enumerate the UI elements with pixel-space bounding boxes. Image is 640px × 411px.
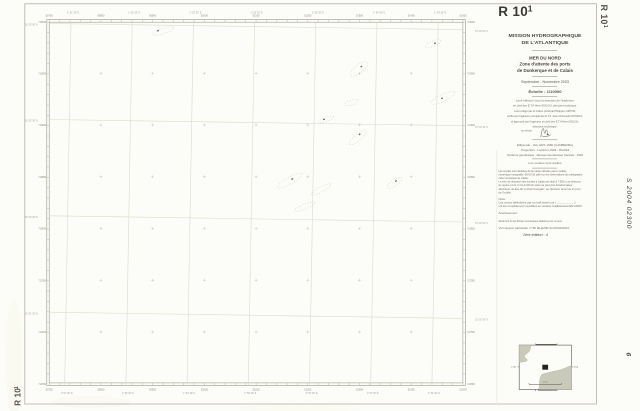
svg-text:1° 53' 00" E: 1° 53' 00" E: [251, 11, 263, 15]
svg-text:51300: 51300: [356, 14, 363, 18]
svg-text:1: 1: [14, 386, 20, 389]
svg-text:7126500: 7126500: [39, 382, 47, 386]
svg-text:7130000: 7130000: [39, 20, 47, 24]
svg-text:1° 52' 30" E: 1° 52' 30" E: [189, 11, 201, 15]
svg-text:7127500: 7127500: [39, 278, 47, 282]
svg-text:51200: 51200: [304, 388, 311, 392]
svg-text:7127500: 7127500: [467, 278, 475, 282]
svg-text:Voir rapport particulier n° 55: Voir rapport particulier n° 55 MHA/NP du…: [499, 226, 570, 230]
svg-text:Ellipsoïde : IAG GRS 1980 (CAN: Ellipsoïde : IAG GRS 1980 (CANBERRA): [517, 143, 573, 147]
svg-text:7126500: 7126500: [467, 382, 475, 386]
svg-text:1° 52' 30" E: 1° 52' 30" E: [183, 391, 195, 395]
svg-text:Levé rédigé par le maître prin: Levé rédigé par le maître principal Phil…: [514, 109, 576, 113]
svg-text:1: 1: [528, 3, 533, 13]
svg-text:Zone d'attente des ports: Zone d'attente des ports: [520, 62, 572, 67]
svg-text:Échelle : 1/10000: Échelle : 1/10000: [529, 89, 562, 94]
svg-text:7128500: 7128500: [467, 175, 475, 179]
svg-text:Projection : Lambert 1993 - RG: Projection : Lambert 1993 - RGF93: [521, 148, 569, 152]
svg-text:en chef des E.T.A Henri DOLOU,: en chef des E.T.A Henri DOLOU, directeur…: [513, 104, 577, 108]
svg-text:1° 51' 30" E: 1° 51' 30" E: [61, 391, 73, 395]
svg-text:DE L'ATLANTIQUE: DE L'ATLANTIQUE: [522, 40, 570, 46]
svg-text:2°00: 2°00: [574, 366, 579, 369]
svg-text:MISSION HYDROGRAPHIQUE: MISSION HYDROGRAPHIQUE: [509, 33, 583, 39]
svg-text:Avertissement :: Avertissement :: [499, 211, 519, 215]
svg-text:Levé effectué sous la directio: Levé effectué sous la direction de l'ing…: [516, 99, 574, 103]
svg-text:1° 52' 00" E: 1° 52' 00" E: [128, 11, 140, 15]
svg-text:50800: 50800: [97, 14, 104, 18]
svg-text:7127000: 7127000: [39, 330, 47, 334]
svg-text:51° 01' 30" N: 51° 01' 30" N: [25, 311, 38, 315]
svg-text:R 10: R 10: [599, 5, 609, 25]
svg-text:MER DU NORD: MER DU NORD: [529, 55, 561, 60]
svg-text:7130000: 7130000: [467, 20, 475, 24]
svg-text:1: 1: [602, 25, 608, 28]
svg-text:R 10: R 10: [498, 4, 528, 19]
svg-text:51500: 51500: [460, 14, 467, 18]
svg-text:51° 01' 30" N: 51° 01' 30" N: [475, 317, 488, 321]
svg-text:Les sondes sont réelles: Les sondes sont réelles: [529, 161, 562, 165]
svg-text:50900: 50900: [149, 388, 156, 392]
svg-text:R 10: R 10: [14, 388, 23, 406]
svg-text:50700: 50700: [46, 14, 53, 18]
svg-text:7129000: 7129000: [467, 123, 475, 127]
svg-text:51200: 51200: [304, 14, 311, 18]
svg-text:7129500: 7129500: [39, 72, 47, 76]
svg-text:50900: 50900: [149, 14, 156, 18]
svg-text:51000: 51000: [201, 388, 208, 392]
svg-text:1° 54' 00" E: 1° 54' 00" E: [367, 391, 379, 395]
svg-text:51° 03' 00" N: 51° 03' 00" N: [25, 23, 38, 27]
svg-text:51° 02' 30" N: 51° 02' 30" N: [25, 119, 38, 123]
svg-text:Système géodésique : Réseau Ge: Système géodésique : Réseau Geodesique f…: [507, 153, 583, 157]
svg-text:1° 54' 30" E: 1° 54' 30" E: [434, 11, 446, 15]
svg-text:51300: 51300: [356, 388, 363, 392]
svg-text:1° 54' 30" E: 1° 54' 30" E: [428, 391, 440, 395]
svg-text:7127000: 7127000: [467, 330, 475, 334]
svg-text:1° 51' 30" E: 1° 51' 30" E: [67, 11, 79, 15]
svg-text:1° 53' 30" E: 1° 53' 30" E: [306, 391, 318, 395]
svg-text:1° 53' 00" E: 1° 53' 00" E: [244, 391, 256, 395]
svg-text:50800: 50800: [97, 388, 104, 392]
svg-text:51° 02' 30" N: 51° 02' 30" N: [475, 125, 488, 129]
svg-text:7128000: 7128000: [467, 227, 475, 231]
svg-text:S 2004 02300: S 2004 02300: [625, 178, 632, 229]
svg-text:vu et bon: vu et bon: [521, 129, 532, 133]
svg-text:1° 54' 00" E: 1° 54' 00" E: [373, 11, 385, 15]
svg-text:51000: 51000: [201, 14, 208, 18]
svg-text:51° 02' 00" N: 51° 02' 00" N: [25, 215, 38, 219]
svg-text:50700: 50700: [46, 388, 53, 392]
svg-text:de Dunkerque et de Calais: de Dunkerque et de Calais: [517, 68, 574, 73]
svg-text:Septembre - Novembre 2003: Septembre - Novembre 2003: [521, 80, 569, 84]
svg-text:1° 52' 00" E: 1° 52' 00" E: [122, 391, 134, 395]
svg-text:ont été complètement insonifié: ont été complètement insonifiées au sond…: [499, 204, 583, 208]
svg-text:Seuls font foi les fichiers nu: Seuls font foi les fichiers numériques é…: [499, 219, 563, 223]
svg-text:7128500: 7128500: [39, 175, 47, 179]
svg-text:10 km: 10 km: [543, 382, 548, 384]
svg-text:51500: 51500: [460, 388, 467, 392]
svg-text:de Trouille.: de Trouille.: [499, 190, 512, 194]
svg-text:6: 6: [625, 353, 632, 357]
svg-text:51400: 51400: [408, 388, 415, 392]
svg-text:51100: 51100: [253, 388, 260, 392]
svg-text:51400: 51400: [408, 14, 415, 18]
svg-text:7129000: 7129000: [39, 123, 47, 127]
svg-text:et approuvé par l'ingénieur en: et approuvé par l'ingénieur en chef des …: [511, 119, 579, 123]
svg-text:7128000: 7128000: [39, 227, 47, 231]
svg-text:51° 03' 00" N: 51° 03' 00" N: [475, 29, 488, 33]
svg-text:1°50: 1°50: [511, 366, 516, 369]
svg-text:51° 02' 00" N: 51° 02' 00" N: [475, 221, 488, 225]
svg-text:1° 53' 30" E: 1° 53' 30" E: [312, 11, 324, 15]
svg-text:vérifié par l'ingénieur princi: vérifié par l'ingénieur principal des E.…: [507, 114, 583, 118]
svg-text:7129500: 7129500: [467, 72, 475, 76]
svg-text:directeur technique.: directeur technique.: [533, 125, 558, 129]
svg-text:1ère édition : 4: 1ère édition : 4: [523, 233, 548, 237]
